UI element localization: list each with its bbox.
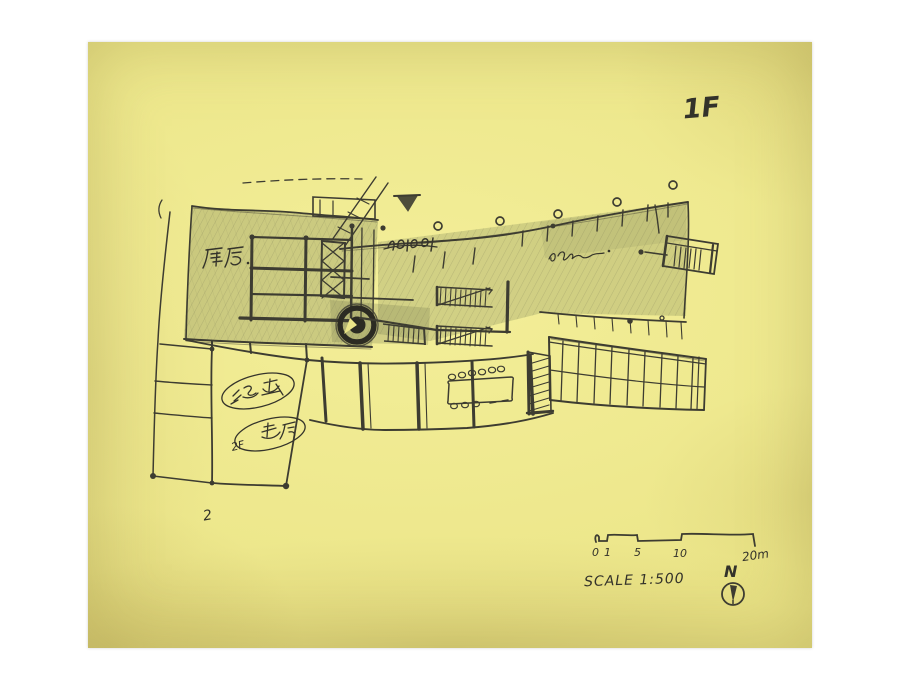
north-arrow: N [722,562,744,605]
table-outline [448,377,514,404]
north-entry-triangle [398,196,417,211]
small-number-label: 2 [202,507,214,524]
compass-needle [730,585,737,602]
column-circle [434,222,442,230]
lower-room-band [186,340,553,430]
north-label: N [724,562,738,581]
oval-annotation-top [218,367,298,416]
scale-bar: 0 1 5 10 20m SCALE 1:500 [584,534,770,590]
scale-tick-1: 1 [604,546,611,559]
column-circle [496,217,504,225]
column-circle [669,181,677,189]
left-outer-walls [153,200,192,476]
scale-tick-0: 0 [592,546,599,559]
column-circle [613,198,621,206]
scale-caption: SCALE 1:500 [584,571,685,591]
scale-end-label: 20m [741,546,770,564]
oval-2f-prefix: 2F [230,438,247,454]
floor-plan-sketch: 1F 2 2F 0 1 5 10 20m SCALE 1:500 N [0,0,900,688]
scale-tick-10: 10 [673,547,687,560]
column-circle [554,210,562,218]
floor-label: 1F [682,91,722,125]
scale-tick-5: 5 [634,546,641,559]
guest-room-wing [527,337,706,414]
scanned-sketch-page: { "colors": { "paper": "#ebe588", "ink":… [0,0,900,688]
